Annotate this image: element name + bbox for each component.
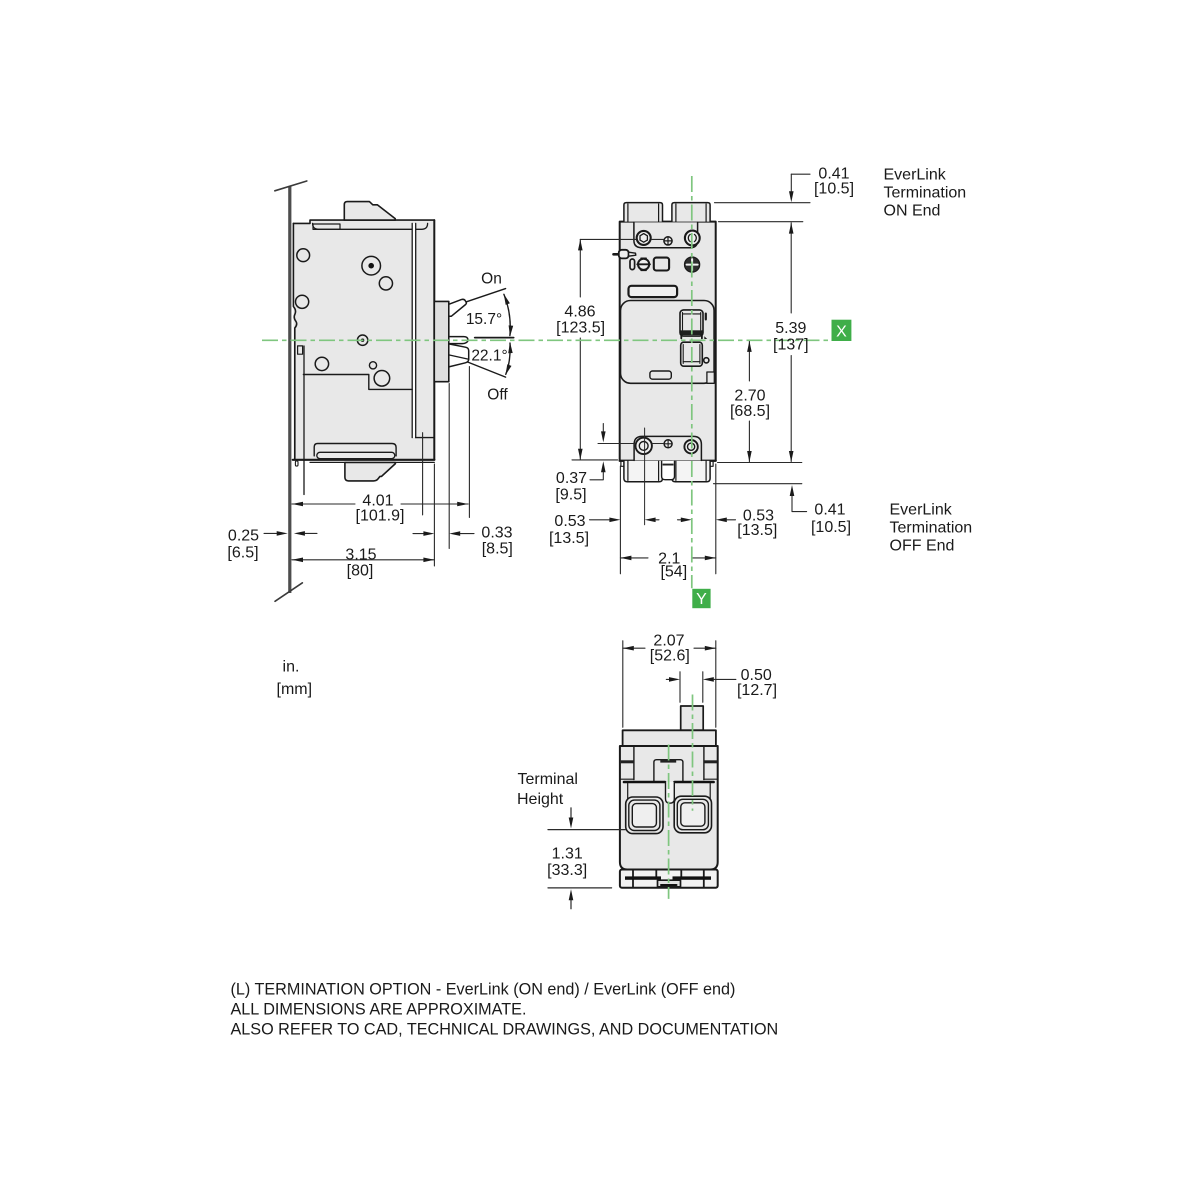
svg-text:[68.5]: [68.5]	[730, 403, 770, 420]
svg-text:Termination: Termination	[884, 185, 967, 202]
svg-text:5.39: 5.39	[775, 320, 806, 337]
svg-text:EverLink: EverLink	[890, 502, 953, 519]
svg-text:0.53: 0.53	[554, 513, 585, 530]
svg-text:OFF End: OFF End	[890, 538, 955, 555]
svg-text:3.15: 3.15	[345, 547, 376, 564]
svg-text:Height: Height	[517, 791, 564, 808]
svg-text:EverLink: EverLink	[884, 167, 947, 184]
svg-text:[54]: [54]	[660, 564, 687, 581]
svg-text:4.86: 4.86	[564, 303, 595, 320]
svg-text:[mm]: [mm]	[277, 681, 313, 698]
svg-text:0.41: 0.41	[814, 502, 845, 519]
svg-text:[52.6]: [52.6]	[650, 647, 690, 664]
svg-text:X: X	[836, 323, 847, 340]
svg-text:22.1°: 22.1°	[471, 348, 507, 365]
svg-text:[33.3]: [33.3]	[547, 862, 587, 879]
svg-text:[80]: [80]	[347, 563, 374, 580]
svg-text:[10.5]: [10.5]	[814, 180, 854, 197]
svg-text:ALL DIMENSIONS ARE APPROXIMATE: ALL DIMENSIONS ARE APPROXIMATE.	[231, 1001, 527, 1019]
svg-text:ALSO REFER TO CAD, TECHNICAL D: ALSO REFER TO CAD, TECHNICAL DRAWINGS, A…	[231, 1020, 779, 1038]
svg-text:[12.7]: [12.7]	[737, 682, 777, 699]
svg-text:[6.5]: [6.5]	[227, 544, 258, 561]
svg-text:Y: Y	[696, 591, 707, 608]
svg-text:Termination: Termination	[890, 520, 973, 537]
svg-text:ON End: ON End	[884, 203, 941, 220]
svg-text:in.: in.	[283, 659, 300, 676]
svg-text:Terminal: Terminal	[518, 771, 578, 788]
svg-text:[10.5]: [10.5]	[811, 519, 851, 536]
svg-text:[9.5]: [9.5]	[555, 486, 586, 503]
svg-text:0.25: 0.25	[228, 527, 259, 544]
svg-text:[137]: [137]	[773, 337, 809, 354]
svg-text:15.7°: 15.7°	[466, 311, 502, 328]
svg-text:[123.5]: [123.5]	[556, 319, 605, 336]
svg-text:[13.5]: [13.5]	[549, 530, 589, 547]
svg-text:[101.9]: [101.9]	[356, 508, 405, 525]
svg-text:[13.5]: [13.5]	[737, 522, 777, 539]
svg-text:Off: Off	[487, 387, 508, 404]
svg-text:0.37: 0.37	[556, 470, 587, 487]
svg-text:1.31: 1.31	[552, 846, 583, 863]
svg-text:(L) TERMINATION OPTION - EverL: (L) TERMINATION OPTION - EverLink (ON en…	[231, 980, 736, 998]
svg-text:[8.5]: [8.5]	[482, 540, 513, 557]
svg-text:On: On	[481, 271, 502, 288]
svg-text:0.33: 0.33	[481, 524, 512, 541]
